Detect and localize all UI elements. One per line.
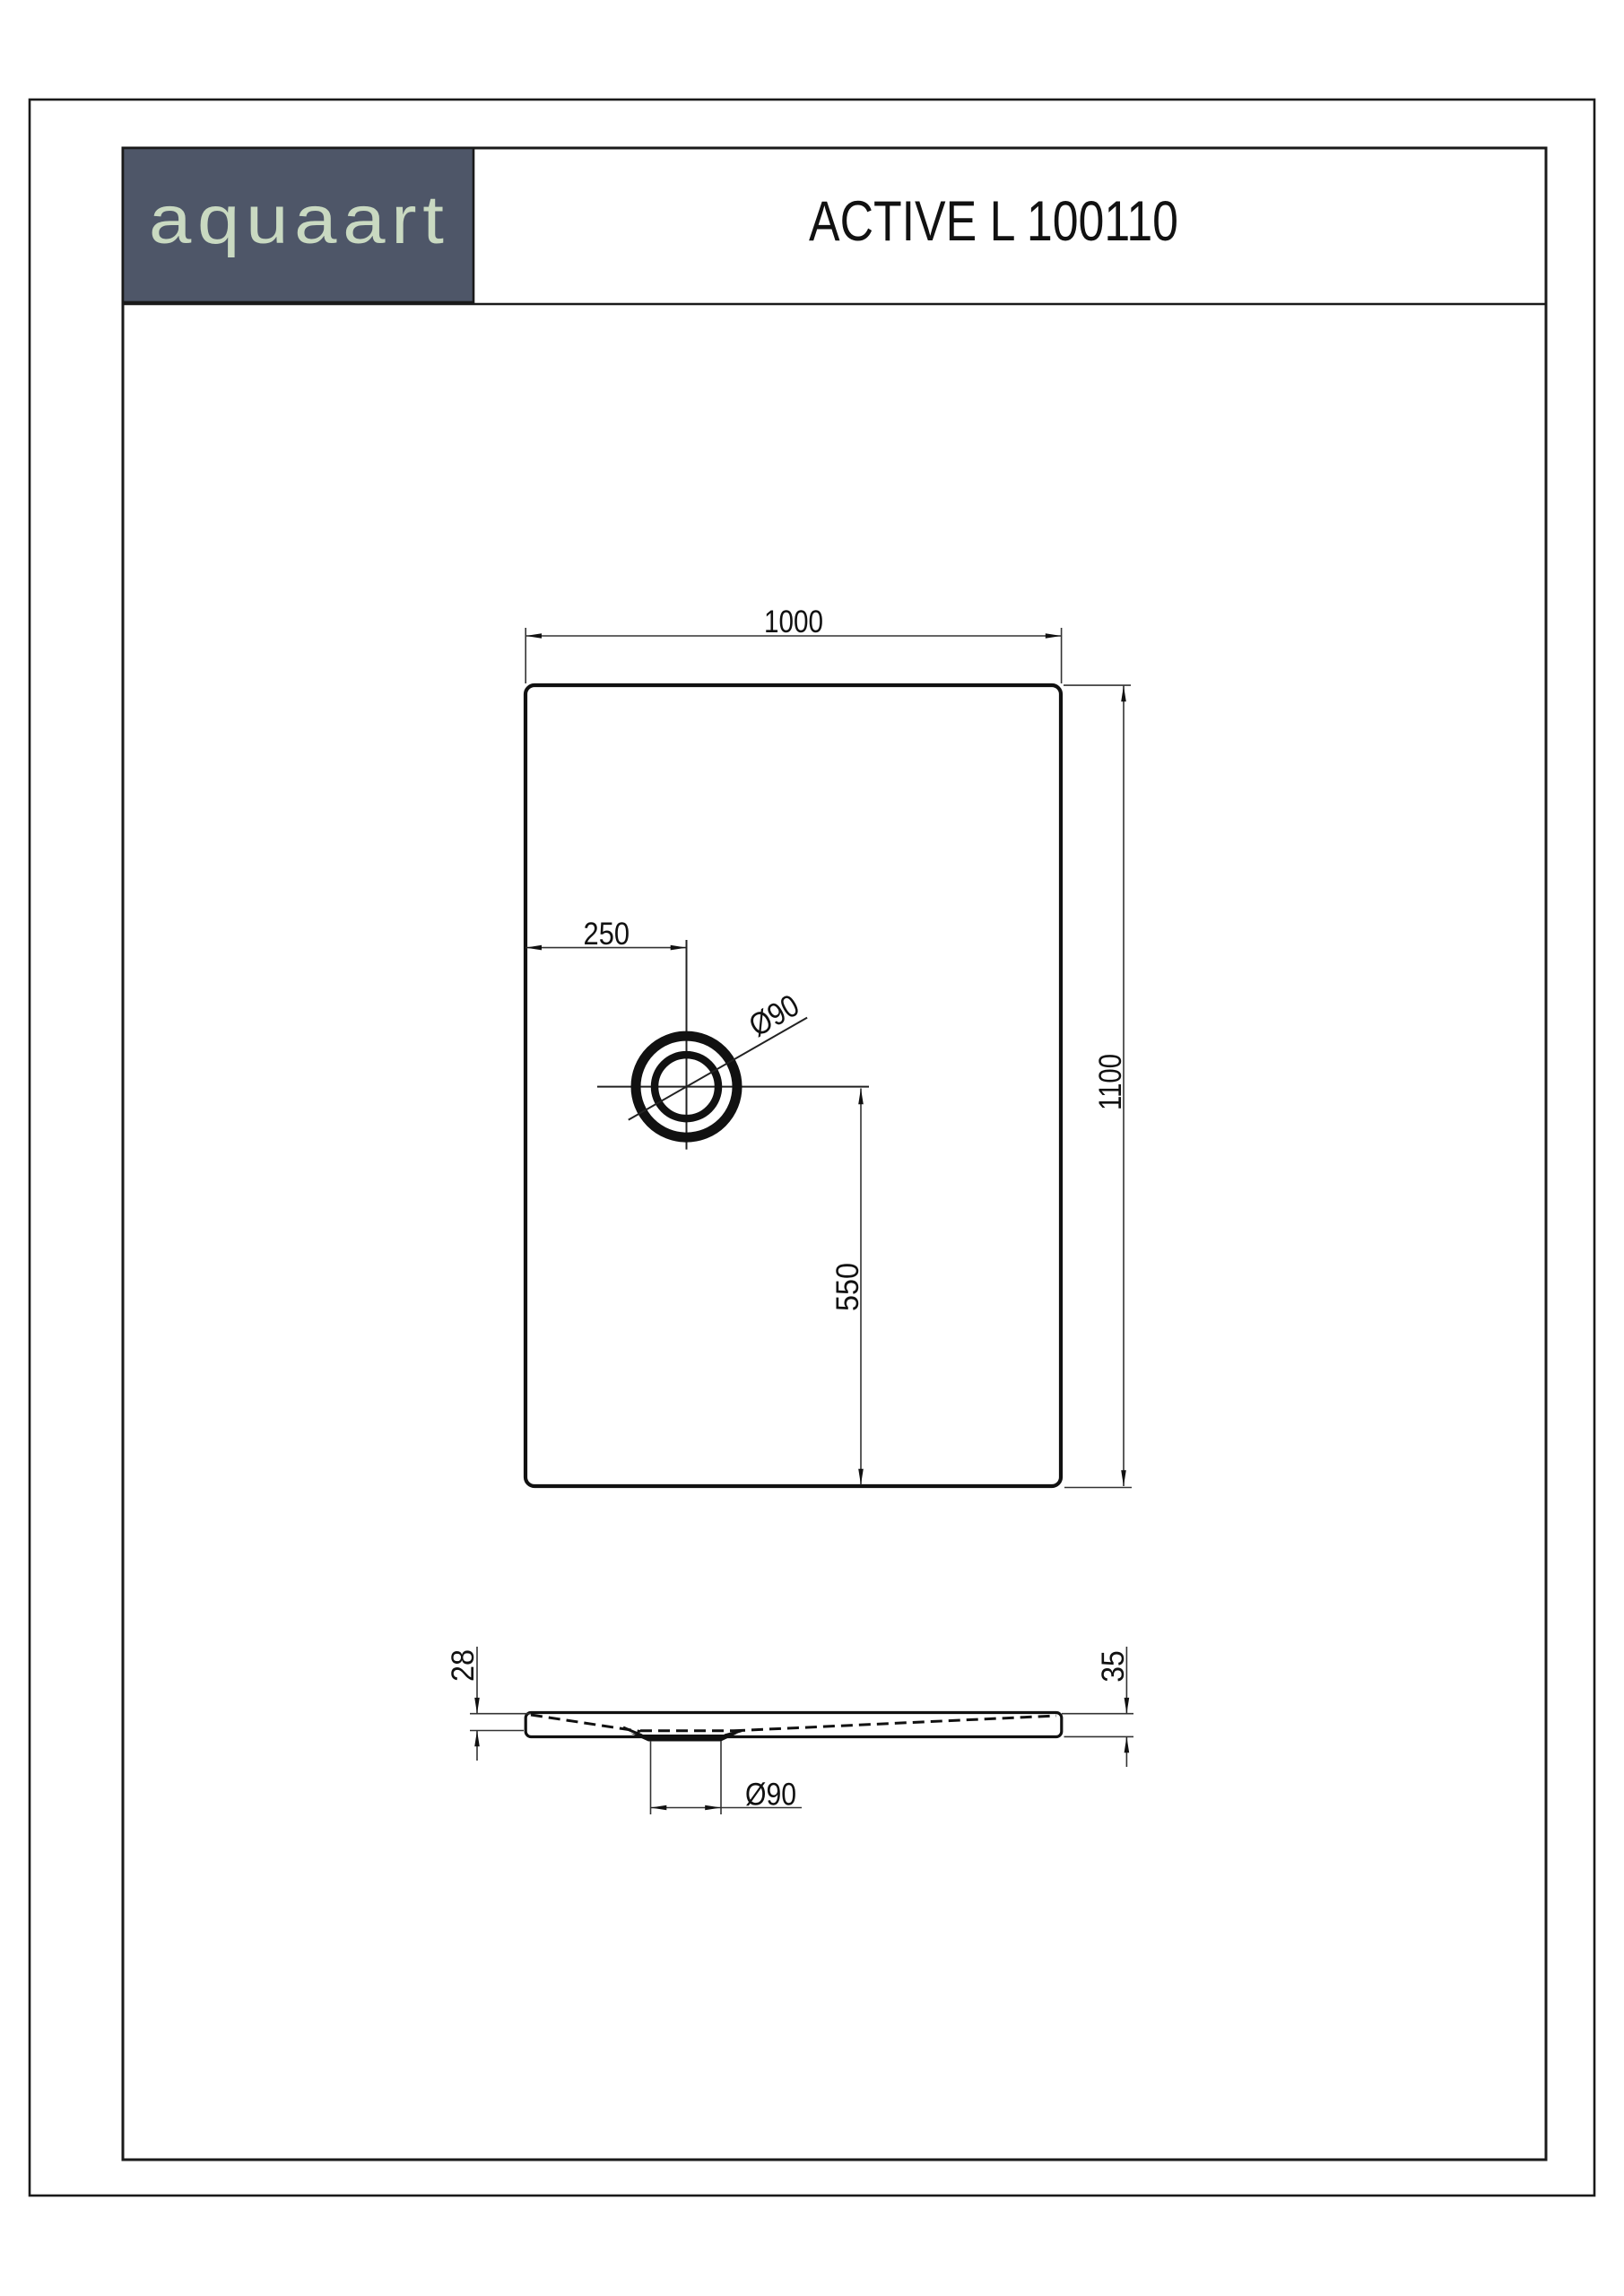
svg-text:550: 550 — [830, 1263, 865, 1311]
svg-text:Ø90: Ø90 — [745, 1778, 796, 1813]
svg-text:1000: 1000 — [764, 604, 823, 639]
svg-text:ACTIVE L 100110: ACTIVE L 100110 — [809, 190, 1178, 253]
svg-text:1100: 1100 — [1093, 1054, 1128, 1110]
svg-text:35: 35 — [1096, 1650, 1131, 1683]
svg-text:28: 28 — [446, 1649, 481, 1682]
svg-text:aquaart: aquaart — [149, 182, 450, 258]
svg-text:250: 250 — [584, 917, 630, 952]
